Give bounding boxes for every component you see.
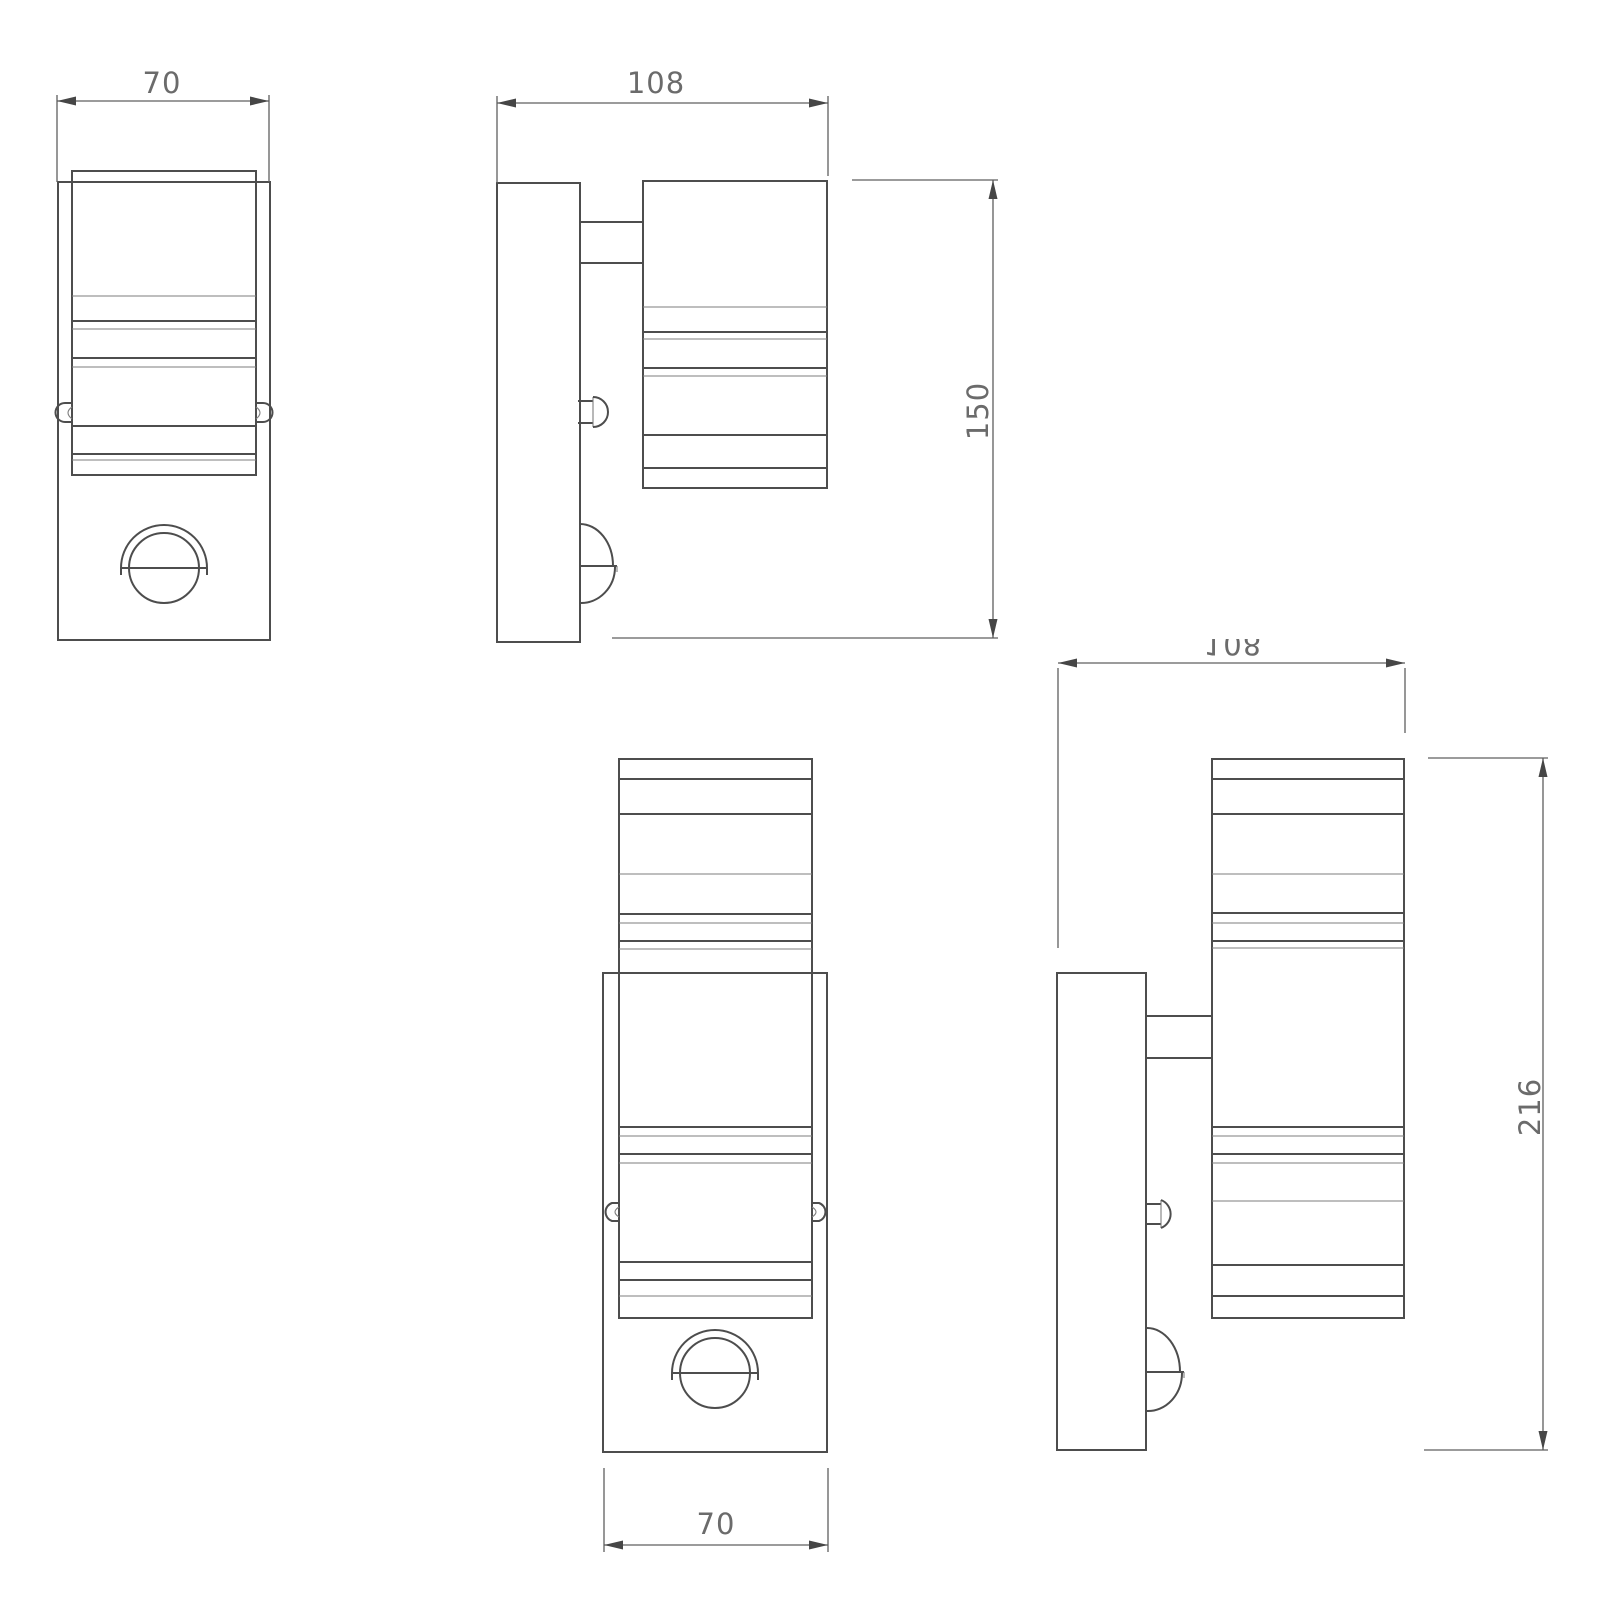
mounting-arm (580, 222, 643, 263)
lamp-cylinder-outline (1212, 759, 1404, 1318)
mounting-arm (1146, 1016, 1212, 1058)
cylinder-ridge-lines (643, 307, 827, 468)
side-view-single (497, 96, 998, 642)
lamp-cylinder-outline (72, 171, 256, 475)
front-view-single (56, 95, 273, 640)
arrowhead-right (809, 1541, 828, 1550)
arrowhead-top (989, 180, 998, 199)
arrowhead-top (1539, 758, 1548, 777)
dimension-label-front-double-width: 70 (676, 1507, 756, 1541)
dimension-label-side-single-height: 150 (961, 382, 995, 440)
pir-sensor-front (121, 525, 207, 603)
backplate-outline (1057, 973, 1146, 1450)
dimension-depth-108 (1058, 659, 1405, 949)
dimension-width-70 (57, 95, 269, 182)
dimension-label-side-single-depth: 108 (596, 66, 716, 100)
dimension-label-side-double-depth: 108 (1173, 639, 1293, 661)
arrowhead-left (57, 97, 76, 106)
arrowhead-bottom (989, 619, 998, 638)
dimension-label-front-single-width: 70 (122, 66, 202, 100)
adjustment-knob (1146, 1200, 1171, 1228)
dimension-depth-108 (497, 96, 828, 183)
arrowhead-right (809, 99, 828, 108)
arrowhead-right (1386, 659, 1405, 668)
dimension-height-150 (612, 180, 998, 638)
technical-drawing-page: 70 108 150 70 108 216 (0, 0, 1600, 1600)
arrowhead-left (604, 1541, 623, 1550)
side-view-double (1057, 659, 1548, 1451)
lamp-cylinder-outline (643, 181, 827, 488)
wall-light-dimension-drawing (0, 0, 1600, 1600)
lamp-cylinder-outline (619, 759, 812, 1318)
arrowhead-right (250, 97, 269, 106)
dimension-label-side-double-height: 216 (1513, 1078, 1547, 1136)
arrowhead-left (497, 99, 516, 108)
backplate-outline (603, 973, 827, 1452)
side-clips (606, 1203, 826, 1221)
adjustment-knob (578, 397, 608, 427)
backplate-outline (497, 183, 580, 642)
backplate-outline (58, 182, 270, 640)
side-clips (56, 403, 273, 422)
cylinder-ridge-lines (619, 779, 812, 1296)
front-view-double (603, 759, 828, 1552)
cylinder-ridge-lines (1212, 779, 1404, 1296)
pir-sensor-side (1147, 1328, 1184, 1411)
pir-sensor-front (672, 1330, 758, 1408)
pir-sensor-side (580, 524, 617, 603)
cylinder-ridge-lines (72, 296, 256, 460)
dimension-label-side-double-depth-text: 108 (1173, 639, 1293, 661)
arrowhead-bottom (1539, 1431, 1548, 1450)
arrowhead-left (1058, 659, 1077, 668)
